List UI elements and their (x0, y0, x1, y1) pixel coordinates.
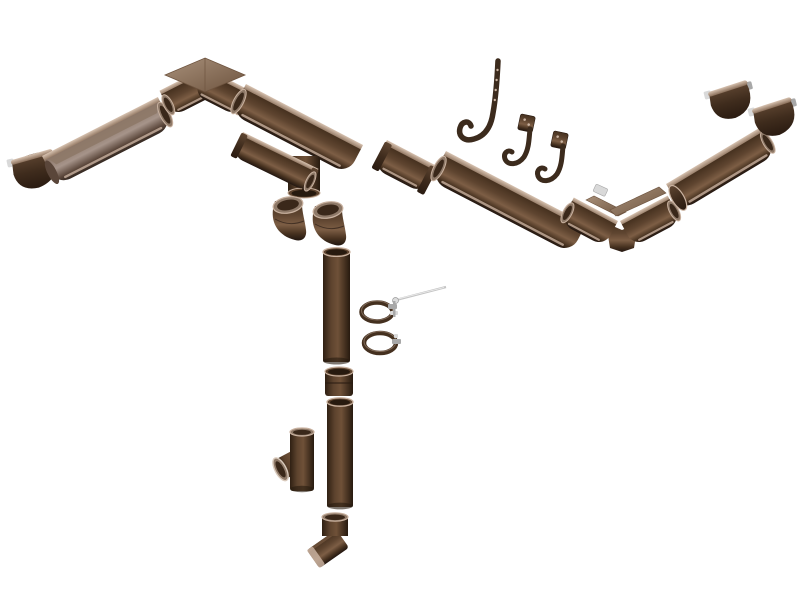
gutter-system-illustration (0, 0, 800, 600)
downspout-pipe-lower (327, 398, 353, 510)
product-image (0, 0, 800, 600)
downspout-coupling (325, 367, 353, 396)
downspout-pipe-upper (323, 248, 350, 365)
